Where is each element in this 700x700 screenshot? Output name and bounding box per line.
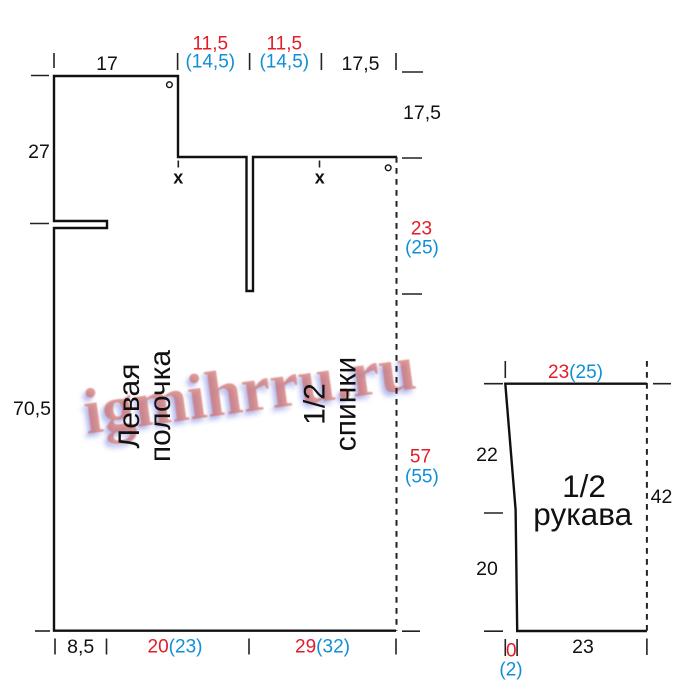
svg-text:29(32): 29(32) <box>295 637 350 658</box>
svg-text:рукава: рукава <box>533 496 632 532</box>
svg-text:x: x <box>315 168 325 188</box>
svg-text:(14,5): (14,5) <box>185 52 235 73</box>
svg-text:20: 20 <box>476 558 498 580</box>
svg-text:23: 23 <box>411 219 432 240</box>
svg-text:(14,5): (14,5) <box>259 52 309 73</box>
svg-text:23(25): 23(25) <box>548 362 603 383</box>
svg-text:(55): (55) <box>405 467 439 488</box>
svg-text:Леваяполочка: Леваяполочка <box>113 350 177 463</box>
svg-text:(25): (25) <box>405 238 439 259</box>
svg-text:17: 17 <box>96 53 118 75</box>
svg-text:x: x <box>173 168 183 188</box>
svg-text:8,5: 8,5 <box>67 636 94 658</box>
svg-text:23: 23 <box>572 636 594 658</box>
svg-text:27: 27 <box>28 141 50 163</box>
svg-text:42: 42 <box>651 486 673 508</box>
svg-text:0: 0 <box>506 641 517 662</box>
svg-text:17,5: 17,5 <box>342 53 380 75</box>
svg-text:70,5: 70,5 <box>13 398 51 420</box>
svg-text:20(23): 20(23) <box>148 637 203 658</box>
svg-text:57: 57 <box>410 447 431 468</box>
svg-text:17,5: 17,5 <box>403 102 441 124</box>
svg-text:(2): (2) <box>499 660 522 681</box>
svg-text:1/2спинки: 1/2спинки <box>299 357 363 451</box>
svg-text:22: 22 <box>476 444 498 466</box>
